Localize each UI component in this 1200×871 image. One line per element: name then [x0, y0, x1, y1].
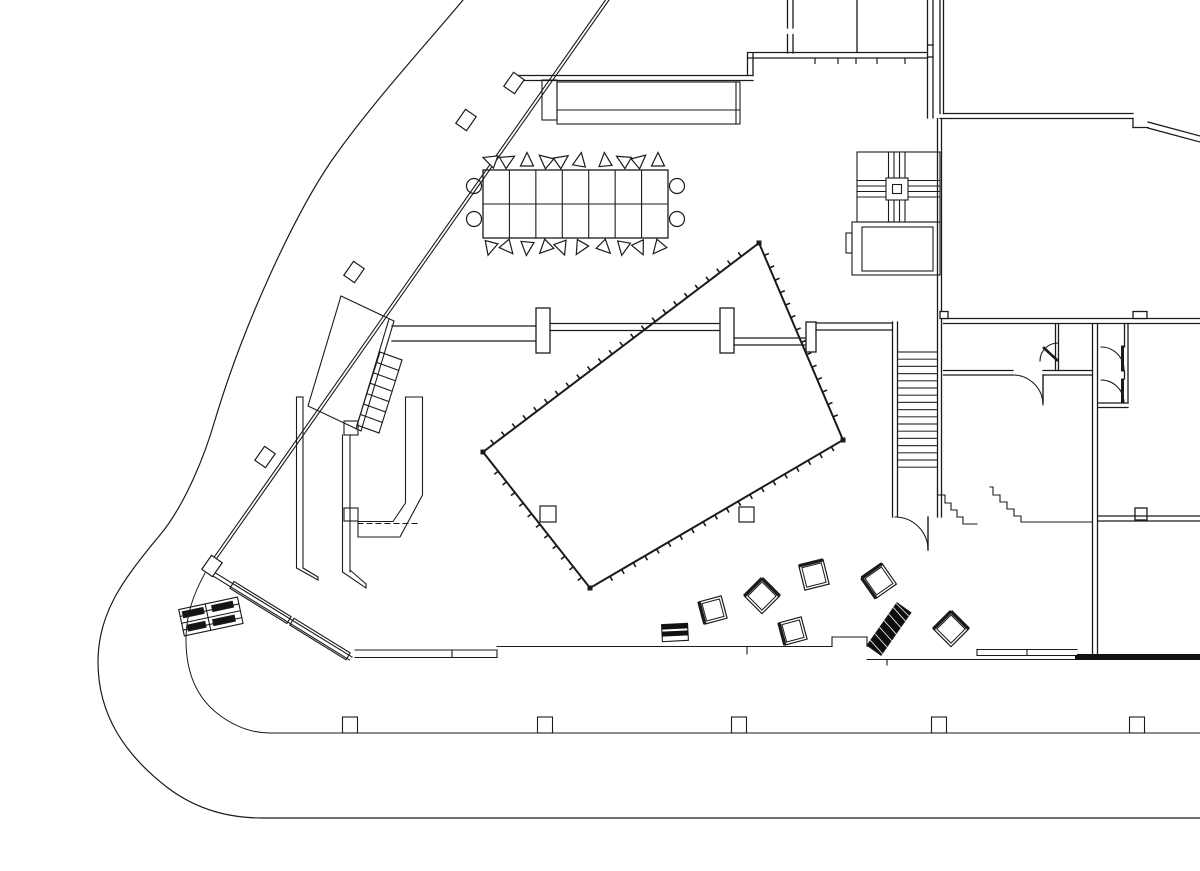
north-west-walls — [517, 0, 928, 81]
striped-floor-box — [662, 623, 689, 641]
chair-icon — [571, 240, 589, 258]
stool-icon — [799, 560, 829, 590]
north-east-walls — [928, 0, 1200, 142]
stair-door — [895, 517, 928, 550]
floor-plan-drawing — [0, 0, 1200, 871]
void-skylight-outline — [481, 241, 846, 591]
stool-icon — [779, 617, 807, 645]
chair-icon — [598, 152, 612, 167]
j-shaped-counter — [358, 397, 423, 537]
south-glazed-wall — [355, 637, 1200, 665]
elevator-core — [857, 152, 940, 222]
servery-counter — [542, 80, 740, 124]
conference-table — [467, 150, 685, 258]
chair-icon — [535, 239, 554, 258]
stepped-wall-b — [990, 487, 1092, 522]
hatched-bench-dark — [867, 603, 911, 655]
end-chair-icon — [670, 212, 685, 227]
end-chair-icon — [670, 179, 685, 194]
sw-curtain-wall — [207, 569, 353, 660]
site-boundary-curve — [98, 0, 1200, 818]
chair-icon — [631, 150, 650, 169]
chair-icon — [554, 240, 571, 257]
stair-treads — [898, 352, 937, 467]
chair-icon — [520, 241, 534, 256]
elevator-machine-room — [846, 222, 940, 275]
chair-icon — [615, 241, 630, 257]
room-door — [1013, 375, 1043, 405]
wc-doors — [1101, 347, 1124, 402]
stool-icon — [744, 578, 779, 613]
floor-plan-canvas — [0, 0, 1200, 871]
end-chair-icon — [467, 212, 482, 227]
glazing-bracket-blocks — [202, 72, 524, 576]
chair-icon — [482, 241, 498, 257]
chair-icon — [652, 153, 665, 167]
entrance-bench-hatched — [179, 597, 243, 636]
right-wing-walls — [940, 312, 1200, 658]
stool-icon — [933, 611, 968, 646]
chair-icon — [521, 153, 534, 167]
chair-icon — [553, 150, 572, 168]
chair-icon — [613, 151, 631, 169]
chair-icon — [632, 240, 649, 258]
pavement-columns — [343, 717, 1145, 733]
stool-icon — [699, 596, 727, 624]
nw-curtain-wall — [207, 0, 610, 568]
chair-icon — [535, 150, 554, 169]
chair-icon — [573, 151, 588, 167]
window-mullion-ticks — [815, 58, 905, 64]
stool-icon — [862, 564, 897, 599]
chair-icon — [648, 239, 667, 258]
chair-icon — [596, 239, 615, 258]
stepped-wall-a — [938, 488, 978, 524]
chair-icon — [500, 151, 518, 169]
scattered-stools — [699, 560, 969, 647]
chair-icon — [499, 239, 518, 258]
